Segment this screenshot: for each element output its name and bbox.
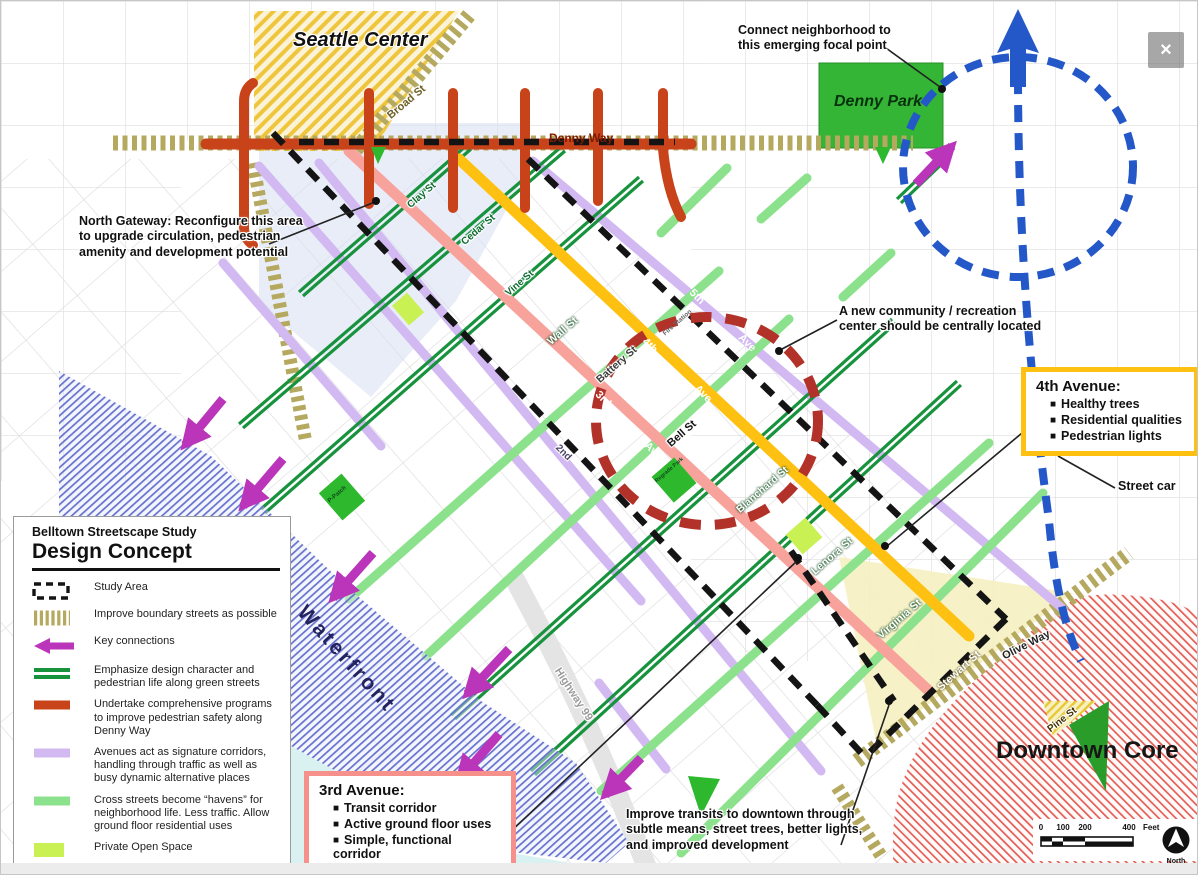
green-streets-icon <box>32 664 80 681</box>
third-avenue-bullet-3: ■Simple, functional corridor <box>333 833 499 861</box>
legend-item-cross-street-havens: Cross streets become “havens” for neighb… <box>32 794 280 834</box>
third-avenue-bullet-2: ■Active ground floor uses <box>333 817 499 831</box>
community-center-annotation: A new community / recreation center shou… <box>839 304 1041 335</box>
denny-way-label: Denny Way <box>549 131 613 145</box>
bullet-square-icon: ■ <box>333 803 339 814</box>
improve-line1: Improve transits to downtown through <box>626 807 862 822</box>
scale-tick-200: 200 <box>1078 823 1091 832</box>
improve-line2: subtle means, street trees, better light… <box>626 822 862 837</box>
legend-label-key-connections: Key connections <box>80 635 175 648</box>
denny-way-icon <box>32 698 80 711</box>
third-avenue-bullet-1: ■Transit corridor <box>333 801 499 815</box>
scale-tick-0: 0 <box>1039 823 1043 832</box>
downtown-core-label: Downtown Core <box>996 737 1179 765</box>
bullet-square-icon: ■ <box>1050 415 1056 426</box>
improve-line3: and improved development <box>626 838 862 853</box>
legend-label-signature-avenues: Avenues act as signature corridors, hand… <box>80 746 280 786</box>
legend-label-denny-way: Undertake comprehensive programs to impr… <box>80 698 280 738</box>
legend-label-private-open-space: Private Open Space <box>80 841 192 854</box>
fourth-avenue-bullet-3: ■Pedestrian lights <box>1050 429 1182 443</box>
north-gateway-line3: amenity and development potential <box>79 245 303 260</box>
close-icon: × <box>1160 39 1172 62</box>
community-line2: center should be centrally located <box>839 319 1041 334</box>
legend-rule <box>32 568 280 571</box>
street-car-label: Street car <box>1118 479 1176 494</box>
fourth-avenue-bullet-3-text: Pedestrian lights <box>1061 429 1162 443</box>
close-button[interactable]: × <box>1148 32 1184 68</box>
legend-subtitle: Belltown Streetscape Study <box>32 525 280 539</box>
north-gateway-line1: North Gateway: Reconfigure this area <box>79 214 303 229</box>
third-avenue-bullet-3-text: Simple, functional corridor <box>333 833 452 861</box>
fourth-avenue-callout: 4th Avenue: ■Healthy trees ■Residential … <box>1021 367 1198 456</box>
connect-neighborhood-annotation: Connect neighborhood to this emerging fo… <box>738 23 891 54</box>
page-bottom-strip <box>1 863 1198 875</box>
cross-street-havens-icon <box>32 794 80 807</box>
fourth-avenue-bullet-2: ■Residential qualities <box>1050 413 1182 427</box>
denny-park-label: Denny Park <box>834 93 922 111</box>
scale-tick-100: 100 <box>1056 823 1069 832</box>
legend-panel: Belltown Streetscape Study Design Concep… <box>13 516 291 864</box>
legend-item-denny-way: Undertake comprehensive programs to impr… <box>32 698 280 738</box>
fourth-avenue-bullet-1: ■Healthy trees <box>1050 397 1182 411</box>
seattle-center-label: Seattle Center <box>293 29 428 52</box>
north-gateway-line2: to upgrade circulation, pedestrian <box>79 229 303 244</box>
connect-line2: this emerging focal point <box>738 38 891 53</box>
scale-unit-label: Feet <box>1143 823 1159 832</box>
belltown-design-concept-map: Seattle Center Denny Park Waterfront Dow… <box>0 0 1198 875</box>
improve-transits-annotation: Improve transits to downtown through sub… <box>626 807 862 853</box>
connect-line1: Connect neighborhood to <box>738 23 891 38</box>
third-avenue-bullet-1-text: Transit corridor <box>344 801 436 815</box>
legend-title: Design Concept <box>32 540 280 564</box>
bullet-square-icon: ■ <box>333 835 339 846</box>
bullet-square-icon: ■ <box>1050 431 1056 442</box>
study-area-icon <box>32 581 80 600</box>
third-avenue-title: 3rd Avenue: <box>319 782 499 799</box>
legend-item-boundary-streets: Improve boundary streets as possible <box>32 608 280 627</box>
private-open-space-icon <box>32 841 80 858</box>
legend-label-study-area: Study Area <box>80 581 148 594</box>
third-avenue-callout: 3rd Avenue: ■Transit corridor ■Active gr… <box>304 771 516 874</box>
legend-item-key-connections: Key connections <box>32 635 280 656</box>
fourth-avenue-bullet-1-text: Healthy trees <box>1061 397 1140 411</box>
community-line1: A new community / recreation <box>839 304 1041 319</box>
fourth-avenue-title: 4th Avenue: <box>1036 378 1182 395</box>
legend-label-green-streets: Emphasize design character and pedestria… <box>80 664 280 690</box>
legend-label-cross-street-havens: Cross streets become “havens” for neighb… <box>80 794 280 834</box>
street-car-annotation: Street car <box>1118 479 1176 494</box>
legend-item-signature-avenues: Avenues act as signature corridors, hand… <box>32 746 280 786</box>
bullet-square-icon: ■ <box>333 819 339 830</box>
scale-bar-graphic <box>1037 835 1157 859</box>
north-gateway-annotation: North Gateway: Reconfigure this area to … <box>79 214 303 260</box>
north-arrow: North <box>1160 825 1192 865</box>
bullet-square-icon: ■ <box>1050 399 1056 410</box>
boundary-streets-icon <box>32 608 80 627</box>
scale-tick-400: 400 <box>1122 823 1135 832</box>
key-connections-arrow-icon <box>32 635 80 656</box>
legend-item-private-open-space: Private Open Space <box>32 841 280 858</box>
signature-avenues-icon <box>32 746 80 759</box>
legend-item-study-area: Study Area <box>32 581 280 600</box>
north-arrow-icon <box>1161 825 1191 855</box>
third-avenue-bullet-2-text: Active ground floor uses <box>344 817 491 831</box>
fourth-avenue-bullet-2-text: Residential qualities <box>1061 413 1182 427</box>
legend-label-boundary-streets: Improve boundary streets as possible <box>80 608 277 621</box>
legend-item-green-streets: Emphasize design character and pedestria… <box>32 664 280 690</box>
